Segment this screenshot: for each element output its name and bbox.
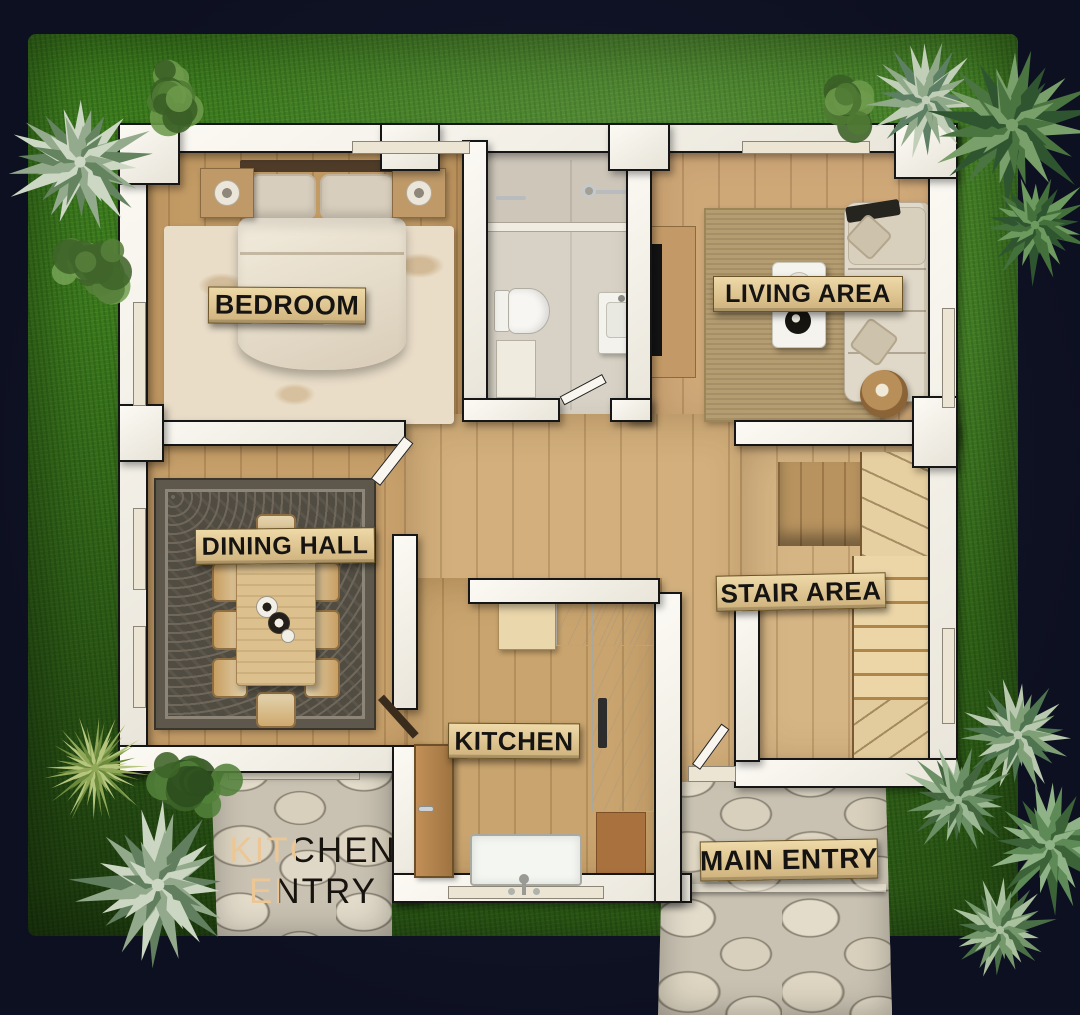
pillar-left-mid: [118, 404, 164, 462]
oven-handle: [598, 698, 607, 748]
window-left-dining-1: [133, 508, 146, 590]
dining-chair-bottom: [256, 692, 296, 728]
bathroom-cabinet: [496, 340, 536, 398]
main-entry-step-edge: [664, 884, 886, 892]
wall-bedroom-bathroom: [462, 140, 488, 402]
bathroom-seam: [570, 160, 572, 410]
kitchen-entry-line1: KITCHEN: [229, 830, 397, 871]
pillar-top-right: [894, 123, 958, 179]
pillar-top-left: [118, 123, 180, 185]
stair-area-label: STAIR AREA: [716, 572, 887, 612]
wall-kitchen-top: [468, 578, 660, 604]
dining-hall-label-text: DINING HALL: [202, 531, 369, 562]
round-basket: [860, 370, 908, 418]
pillar-top-bathroom: [608, 123, 670, 171]
dining-plate-3: [281, 629, 295, 643]
wall-kitchen-right: [654, 592, 682, 903]
living-area-label-text: LIVING AREA: [725, 280, 891, 309]
vase-right: [406, 180, 432, 206]
kitchen-mat: [596, 812, 646, 874]
wall-stair-left: [734, 596, 760, 762]
main-entry-label-text: MAIN ENTRY: [700, 842, 879, 877]
floor-plan-scene: BEDROOM LIVING AREA DINING HALL STAIR AR…: [0, 0, 1080, 1015]
wall-bathroom-bottom-right: [610, 398, 652, 422]
bed-pillow-left: [250, 174, 316, 220]
bathroom-shelf: [484, 222, 630, 232]
bedroom-label-text: BEDROOM: [215, 289, 360, 321]
wall-stair-bottom: [734, 758, 958, 788]
sink-handle-right: [533, 888, 540, 895]
main-entry-label: MAIN ENTRY: [700, 838, 879, 881]
vanity-faucet: [618, 295, 625, 302]
window-right-living: [942, 308, 955, 408]
main-entry-threshold: [688, 766, 736, 782]
stair-area-label-text: STAIR AREA: [720, 575, 882, 609]
toilet-bowl: [508, 288, 550, 334]
window-top-living: [742, 141, 870, 154]
wall-dining-right: [392, 534, 418, 710]
bed-fold-line: [240, 252, 404, 255]
kitchen-entry-label: KITCHEN ENTRY: [168, 830, 458, 912]
sink-handle-left: [508, 888, 515, 895]
window-right-stair: [942, 628, 955, 724]
vase-left: [214, 180, 240, 206]
towel-bar-left: [496, 196, 526, 200]
dining-hall-label: DINING HALL: [195, 527, 375, 565]
tv-screen: [652, 244, 662, 356]
sink-faucet-stem: [522, 882, 526, 895]
kitchen-entry-line2: ENTRY: [249, 871, 377, 912]
towel-ring: [582, 184, 596, 198]
window-top-bedroom: [352, 141, 470, 154]
window-kitchen-sink: [448, 886, 604, 899]
wall-bathroom-living: [626, 140, 652, 422]
stair-winder-bottom: [852, 700, 928, 762]
door-handle: [418, 806, 434, 812]
stair-landing-shadow: [778, 462, 866, 546]
wall-dining-bottom: [118, 745, 422, 773]
kitchen-cabinet: [498, 600, 556, 650]
window-left-dining-2: [133, 626, 146, 708]
kitchen-label-text: KITCHEN: [454, 725, 573, 757]
living-area-label: LIVING AREA: [713, 276, 903, 312]
bedroom-label: BEDROOM: [208, 286, 366, 324]
window-left-bedroom: [133, 302, 146, 406]
bed-pillow-right: [320, 174, 394, 220]
kitchen-label: KITCHEN: [448, 723, 580, 760]
wall-bathroom-bottom-left: [462, 398, 560, 422]
sofa-seam-1: [848, 268, 926, 270]
